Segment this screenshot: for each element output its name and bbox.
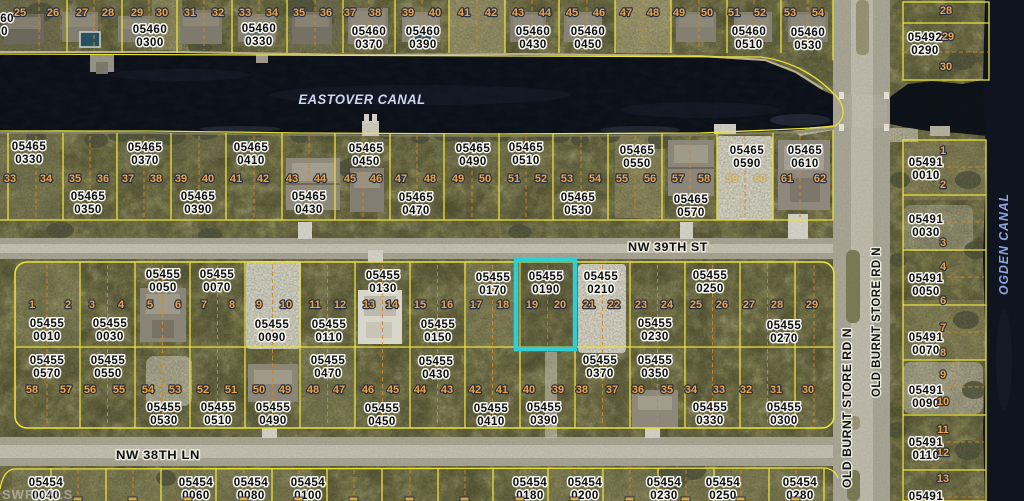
svg-text:30: 30 bbox=[156, 7, 168, 19]
svg-text:13: 13 bbox=[363, 299, 375, 311]
svg-text:48: 48 bbox=[424, 173, 436, 185]
svg-text:52: 52 bbox=[754, 7, 766, 19]
svg-text:0430: 0430 bbox=[519, 39, 547, 51]
svg-text:55: 55 bbox=[113, 384, 125, 396]
svg-text:05491: 05491 bbox=[909, 157, 944, 169]
svg-text:26: 26 bbox=[716, 299, 728, 311]
svg-text:OLD BURNT STORE RD N: OLD BURNT STORE RD N bbox=[871, 247, 883, 397]
svg-text:45: 45 bbox=[387, 384, 399, 396]
svg-text:0370: 0370 bbox=[586, 368, 614, 380]
svg-text:0030: 0030 bbox=[912, 227, 940, 239]
svg-text:05455: 05455 bbox=[693, 270, 728, 282]
svg-text:05465: 05465 bbox=[399, 192, 434, 204]
svg-text:05465: 05465 bbox=[561, 192, 596, 204]
svg-text:19: 19 bbox=[526, 299, 538, 311]
svg-text:1: 1 bbox=[29, 299, 35, 311]
svg-text:49: 49 bbox=[673, 7, 685, 19]
svg-text:NW 39TH ST: NW 39TH ST bbox=[628, 242, 708, 254]
svg-text:6: 6 bbox=[940, 295, 946, 307]
svg-text:42: 42 bbox=[257, 173, 269, 185]
svg-text:0570: 0570 bbox=[33, 368, 61, 380]
svg-text:05465: 05465 bbox=[234, 142, 269, 154]
svg-text:0050: 0050 bbox=[912, 286, 940, 298]
svg-text:29: 29 bbox=[942, 31, 954, 43]
svg-text:46: 46 bbox=[362, 384, 374, 396]
svg-text:05455: 05455 bbox=[474, 403, 509, 415]
svg-text:05455: 05455 bbox=[767, 320, 802, 332]
svg-text:36: 36 bbox=[632, 384, 644, 396]
svg-text:0: 0 bbox=[1, 26, 8, 38]
svg-text:05460: 05460 bbox=[242, 23, 276, 35]
svg-text:NW 38TH LN: NW 38TH LN bbox=[116, 450, 200, 462]
svg-text:46: 46 bbox=[370, 173, 382, 185]
svg-text:0300: 0300 bbox=[770, 415, 798, 427]
svg-text:0230: 0230 bbox=[650, 490, 678, 501]
svg-text:05465: 05465 bbox=[71, 191, 106, 203]
svg-text:0390: 0390 bbox=[409, 39, 437, 51]
svg-text:05460: 05460 bbox=[352, 26, 386, 38]
svg-text:34: 34 bbox=[266, 7, 279, 19]
svg-text:0430: 0430 bbox=[422, 369, 450, 381]
svg-text:0530: 0530 bbox=[564, 205, 592, 217]
svg-text:34: 34 bbox=[685, 384, 698, 396]
svg-text:1: 1 bbox=[940, 145, 946, 157]
svg-text:4: 4 bbox=[118, 299, 125, 311]
svg-text:48: 48 bbox=[647, 7, 659, 19]
svg-text:0250: 0250 bbox=[709, 490, 737, 501]
svg-text:33: 33 bbox=[239, 7, 251, 19]
svg-text:49: 49 bbox=[452, 173, 464, 185]
svg-text:05455: 05455 bbox=[419, 356, 454, 368]
svg-text:05465: 05465 bbox=[620, 145, 655, 157]
svg-text:05455: 05455 bbox=[527, 402, 562, 414]
svg-text:0070: 0070 bbox=[912, 345, 940, 357]
svg-text:0090: 0090 bbox=[912, 398, 940, 410]
svg-text:05455: 05455 bbox=[256, 402, 291, 414]
svg-text:44: 44 bbox=[414, 384, 427, 396]
svg-text:05454: 05454 bbox=[706, 477, 741, 489]
svg-text:05455: 05455 bbox=[311, 355, 346, 367]
svg-text:0170: 0170 bbox=[479, 285, 507, 297]
svg-text:41: 41 bbox=[230, 173, 242, 185]
svg-text:0270: 0270 bbox=[770, 333, 798, 345]
svg-text:53: 53 bbox=[784, 7, 796, 19]
svg-text:0190: 0190 bbox=[532, 284, 560, 296]
svg-text:50: 50 bbox=[253, 384, 265, 396]
svg-text:7: 7 bbox=[201, 299, 207, 311]
svg-text:0450: 0450 bbox=[368, 416, 396, 428]
svg-text:54: 54 bbox=[142, 384, 155, 396]
svg-text:05465: 05465 bbox=[128, 142, 163, 154]
svg-text:28: 28 bbox=[771, 299, 783, 311]
svg-text:05455: 05455 bbox=[93, 318, 128, 330]
svg-text:05455: 05455 bbox=[767, 402, 802, 414]
svg-text:34: 34 bbox=[40, 173, 53, 185]
svg-text:43: 43 bbox=[441, 384, 453, 396]
svg-text:05491: 05491 bbox=[909, 332, 944, 344]
svg-text:EASTOVER CANAL: EASTOVER CANAL bbox=[299, 92, 426, 107]
svg-text:0390: 0390 bbox=[530, 415, 558, 427]
svg-text:41: 41 bbox=[458, 7, 470, 19]
svg-text:0450: 0450 bbox=[574, 39, 602, 51]
svg-text:32: 32 bbox=[740, 384, 752, 396]
svg-text:05460: 05460 bbox=[133, 24, 167, 36]
svg-text:57: 57 bbox=[60, 384, 72, 396]
svg-text:05465: 05465 bbox=[12, 141, 47, 153]
svg-text:4: 4 bbox=[940, 261, 947, 273]
svg-text:39: 39 bbox=[552, 384, 564, 396]
svg-text:32: 32 bbox=[212, 7, 224, 19]
svg-text:17: 17 bbox=[470, 299, 482, 311]
svg-text:05454: 05454 bbox=[179, 477, 214, 489]
svg-text:0090: 0090 bbox=[258, 332, 286, 344]
svg-text:0010: 0010 bbox=[33, 331, 61, 343]
svg-text:59: 59 bbox=[726, 173, 738, 185]
svg-text:37: 37 bbox=[122, 173, 134, 185]
svg-text:SWFLMLS: SWFLMLS bbox=[2, 487, 73, 501]
svg-text:30: 30 bbox=[940, 61, 952, 73]
svg-text:36: 36 bbox=[320, 7, 332, 19]
svg-text:56: 56 bbox=[84, 384, 96, 396]
svg-text:0610: 0610 bbox=[791, 158, 819, 170]
svg-text:05465: 05465 bbox=[674, 194, 709, 206]
svg-text:30: 30 bbox=[802, 384, 814, 396]
svg-text:0410: 0410 bbox=[477, 416, 505, 428]
svg-text:23: 23 bbox=[635, 299, 647, 311]
svg-text:47: 47 bbox=[333, 384, 345, 396]
svg-text:62: 62 bbox=[814, 173, 826, 185]
svg-text:54: 54 bbox=[589, 173, 602, 185]
svg-text:05455: 05455 bbox=[529, 271, 564, 283]
svg-text:60: 60 bbox=[0, 13, 14, 25]
svg-text:05465: 05465 bbox=[509, 142, 544, 154]
svg-text:44: 44 bbox=[539, 7, 552, 19]
svg-text:52: 52 bbox=[535, 173, 547, 185]
svg-text:35: 35 bbox=[661, 384, 673, 396]
svg-text:53: 53 bbox=[561, 173, 573, 185]
svg-text:0550: 0550 bbox=[94, 368, 122, 380]
svg-text:61: 61 bbox=[781, 173, 793, 185]
svg-text:05455: 05455 bbox=[584, 271, 619, 283]
svg-text:46: 46 bbox=[593, 7, 605, 19]
svg-text:33: 33 bbox=[713, 384, 725, 396]
svg-text:05492: 05492 bbox=[908, 32, 942, 44]
svg-text:57: 57 bbox=[672, 173, 684, 185]
svg-text:25: 25 bbox=[690, 299, 702, 311]
svg-text:18: 18 bbox=[497, 299, 509, 311]
svg-text:47: 47 bbox=[395, 173, 407, 185]
svg-text:0470: 0470 bbox=[402, 205, 430, 217]
svg-text:43: 43 bbox=[512, 7, 524, 19]
svg-text:35: 35 bbox=[69, 173, 81, 185]
svg-text:54: 54 bbox=[812, 7, 825, 19]
svg-text:0510: 0510 bbox=[204, 415, 232, 427]
svg-text:0150: 0150 bbox=[424, 332, 452, 344]
svg-text:45: 45 bbox=[344, 173, 356, 185]
svg-text:05455: 05455 bbox=[638, 355, 673, 367]
svg-text:28: 28 bbox=[102, 7, 114, 19]
svg-text:49: 49 bbox=[279, 384, 291, 396]
svg-text:37: 37 bbox=[344, 7, 356, 19]
svg-text:51: 51 bbox=[728, 7, 740, 19]
svg-text:0350: 0350 bbox=[641, 368, 669, 380]
svg-text:05455: 05455 bbox=[91, 355, 126, 367]
svg-text:0370: 0370 bbox=[355, 39, 383, 51]
svg-text:2: 2 bbox=[940, 179, 946, 191]
svg-text:05455: 05455 bbox=[693, 402, 728, 414]
svg-text:28: 28 bbox=[940, 5, 952, 17]
svg-text:05460: 05460 bbox=[571, 26, 605, 38]
svg-text:0290: 0290 bbox=[911, 45, 939, 57]
svg-text:05455: 05455 bbox=[365, 403, 400, 415]
svg-text:0010: 0010 bbox=[912, 170, 940, 182]
svg-text:0350: 0350 bbox=[74, 204, 102, 216]
svg-text:37: 37 bbox=[606, 384, 618, 396]
svg-text:22: 22 bbox=[608, 299, 620, 311]
svg-text:05455: 05455 bbox=[255, 319, 290, 331]
svg-text:05454: 05454 bbox=[291, 477, 326, 489]
svg-text:51: 51 bbox=[225, 384, 237, 396]
svg-text:0030: 0030 bbox=[96, 331, 124, 343]
svg-text:05491: 05491 bbox=[909, 273, 944, 285]
svg-text:53: 53 bbox=[169, 384, 181, 396]
svg-text:24: 24 bbox=[661, 299, 674, 311]
svg-text:3: 3 bbox=[89, 299, 95, 311]
svg-text:05455: 05455 bbox=[201, 402, 236, 414]
svg-text:05454: 05454 bbox=[513, 477, 548, 489]
svg-text:05454: 05454 bbox=[783, 477, 818, 489]
svg-text:3: 3 bbox=[940, 237, 946, 249]
svg-text:29: 29 bbox=[806, 299, 818, 311]
svg-text:0590: 0590 bbox=[733, 158, 761, 170]
svg-text:50: 50 bbox=[701, 7, 713, 19]
svg-text:05454: 05454 bbox=[568, 477, 603, 489]
svg-text:05454: 05454 bbox=[234, 477, 269, 489]
svg-text:2: 2 bbox=[65, 299, 71, 311]
svg-text:39: 39 bbox=[402, 7, 414, 19]
svg-text:05455: 05455 bbox=[147, 402, 182, 414]
svg-text:0210: 0210 bbox=[587, 284, 615, 296]
svg-text:60: 60 bbox=[754, 173, 766, 185]
svg-text:05465: 05465 bbox=[292, 191, 327, 203]
svg-text:0130: 0130 bbox=[369, 283, 397, 295]
svg-text:8: 8 bbox=[940, 347, 946, 359]
svg-text:0530: 0530 bbox=[794, 40, 822, 52]
svg-text:40: 40 bbox=[202, 173, 214, 185]
svg-text:0550: 0550 bbox=[623, 158, 651, 170]
svg-text:05455: 05455 bbox=[30, 318, 65, 330]
svg-text:14: 14 bbox=[386, 299, 399, 311]
svg-text:05455: 05455 bbox=[200, 269, 235, 281]
svg-text:0250: 0250 bbox=[696, 283, 724, 295]
svg-text:40: 40 bbox=[523, 384, 535, 396]
svg-text:0510: 0510 bbox=[512, 155, 540, 167]
svg-text:05455: 05455 bbox=[312, 319, 347, 331]
svg-text:05465: 05465 bbox=[730, 145, 765, 157]
svg-text:42: 42 bbox=[469, 384, 481, 396]
svg-text:31: 31 bbox=[770, 384, 782, 396]
svg-text:38: 38 bbox=[369, 7, 381, 19]
svg-text:25: 25 bbox=[14, 7, 26, 19]
svg-text:0530: 0530 bbox=[150, 415, 178, 427]
svg-text:0110: 0110 bbox=[316, 332, 343, 344]
svg-text:OGDEN CANAL: OGDEN CANAL bbox=[996, 193, 1011, 295]
svg-text:05465: 05465 bbox=[181, 191, 216, 203]
svg-text:33: 33 bbox=[4, 173, 16, 185]
svg-text:6: 6 bbox=[175, 299, 181, 311]
svg-text:38: 38 bbox=[150, 173, 162, 185]
svg-text:05454: 05454 bbox=[647, 477, 682, 489]
svg-text:0490: 0490 bbox=[459, 156, 487, 168]
svg-text:0370: 0370 bbox=[131, 155, 159, 167]
svg-text:40: 40 bbox=[429, 7, 441, 19]
svg-text:05460: 05460 bbox=[732, 26, 766, 38]
svg-text:05491: 05491 bbox=[909, 491, 944, 501]
svg-text:0510: 0510 bbox=[735, 39, 763, 51]
svg-text:27: 27 bbox=[76, 7, 88, 19]
svg-text:05455: 05455 bbox=[366, 270, 401, 282]
svg-text:0050: 0050 bbox=[149, 282, 177, 294]
svg-text:12: 12 bbox=[937, 447, 949, 459]
svg-text:16: 16 bbox=[441, 299, 453, 311]
svg-text:0110: 0110 bbox=[913, 450, 940, 462]
svg-text:05465: 05465 bbox=[788, 145, 823, 157]
svg-text:05455: 05455 bbox=[421, 319, 456, 331]
svg-text:0330: 0330 bbox=[15, 154, 43, 166]
svg-text:35: 35 bbox=[293, 7, 305, 19]
svg-text:50: 50 bbox=[479, 173, 491, 185]
svg-text:05460: 05460 bbox=[516, 26, 550, 38]
svg-text:7: 7 bbox=[940, 322, 946, 334]
svg-text:56: 56 bbox=[644, 173, 656, 185]
svg-text:58: 58 bbox=[26, 384, 38, 396]
svg-text:51: 51 bbox=[508, 173, 520, 185]
svg-text:05455: 05455 bbox=[638, 318, 673, 330]
svg-text:31: 31 bbox=[184, 7, 196, 19]
svg-text:10: 10 bbox=[937, 396, 949, 408]
svg-text:5: 5 bbox=[147, 299, 153, 311]
svg-text:21: 21 bbox=[583, 299, 595, 311]
svg-text:38: 38 bbox=[576, 384, 588, 396]
svg-text:41: 41 bbox=[496, 384, 508, 396]
svg-text:OLD BURNT STORE RD N: OLD BURNT STORE RD N bbox=[842, 328, 854, 488]
svg-text:52: 52 bbox=[197, 384, 209, 396]
svg-text:39: 39 bbox=[175, 173, 187, 185]
svg-text:0450: 0450 bbox=[352, 156, 380, 168]
svg-text:05460: 05460 bbox=[791, 27, 825, 39]
svg-text:0330: 0330 bbox=[245, 36, 273, 48]
svg-text:42: 42 bbox=[485, 7, 497, 19]
svg-text:20: 20 bbox=[554, 299, 566, 311]
svg-text:11: 11 bbox=[309, 299, 321, 311]
svg-text:47: 47 bbox=[620, 7, 632, 19]
svg-text:15: 15 bbox=[414, 299, 426, 311]
svg-text:0390: 0390 bbox=[184, 204, 212, 216]
svg-text:05455: 05455 bbox=[583, 355, 618, 367]
svg-text:9: 9 bbox=[940, 369, 946, 381]
svg-text:05455: 05455 bbox=[30, 355, 65, 367]
svg-text:05455: 05455 bbox=[476, 272, 511, 284]
svg-text:05455: 05455 bbox=[146, 269, 181, 281]
svg-text:05465: 05465 bbox=[349, 143, 384, 155]
svg-text:0230: 0230 bbox=[641, 331, 669, 343]
svg-text:05491: 05491 bbox=[909, 214, 944, 226]
svg-text:11: 11 bbox=[937, 424, 949, 436]
svg-text:0330: 0330 bbox=[696, 415, 724, 427]
svg-text:0470: 0470 bbox=[314, 368, 342, 380]
svg-text:45: 45 bbox=[566, 7, 578, 19]
svg-text:0570: 0570 bbox=[677, 207, 705, 219]
svg-text:8: 8 bbox=[229, 299, 235, 311]
svg-text:10: 10 bbox=[280, 299, 292, 311]
svg-text:0070: 0070 bbox=[203, 282, 231, 294]
svg-text:9: 9 bbox=[256, 299, 262, 311]
svg-text:55: 55 bbox=[616, 173, 628, 185]
svg-text:12: 12 bbox=[334, 299, 346, 311]
svg-text:26: 26 bbox=[47, 7, 59, 19]
svg-text:58: 58 bbox=[698, 173, 710, 185]
svg-text:27: 27 bbox=[743, 299, 755, 311]
svg-text:29: 29 bbox=[131, 7, 143, 19]
svg-text:43: 43 bbox=[286, 173, 298, 185]
svg-text:48: 48 bbox=[307, 384, 319, 396]
svg-text:13: 13 bbox=[937, 473, 949, 485]
svg-text:0300: 0300 bbox=[136, 37, 164, 49]
svg-text:05465: 05465 bbox=[456, 143, 491, 155]
svg-text:0490: 0490 bbox=[259, 415, 287, 427]
svg-text:44: 44 bbox=[314, 173, 327, 185]
svg-text:0410: 0410 bbox=[237, 155, 265, 167]
svg-text:0430: 0430 bbox=[295, 204, 323, 216]
svg-text:05460: 05460 bbox=[406, 26, 440, 38]
svg-text:36: 36 bbox=[97, 173, 109, 185]
